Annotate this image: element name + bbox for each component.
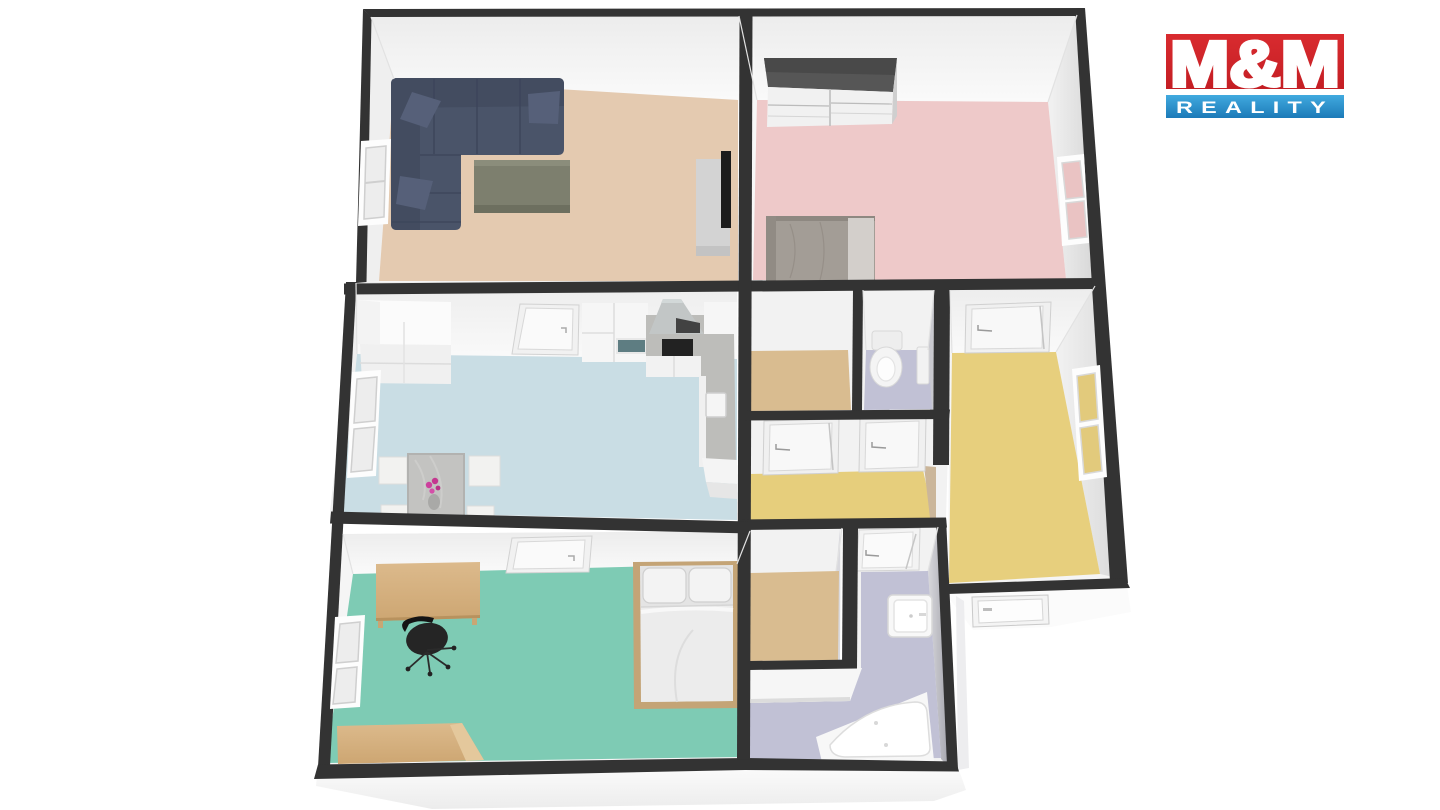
svg-text:M&M: M&M xyxy=(1170,28,1340,100)
svg-text:REALITY: REALITY xyxy=(1176,98,1334,117)
